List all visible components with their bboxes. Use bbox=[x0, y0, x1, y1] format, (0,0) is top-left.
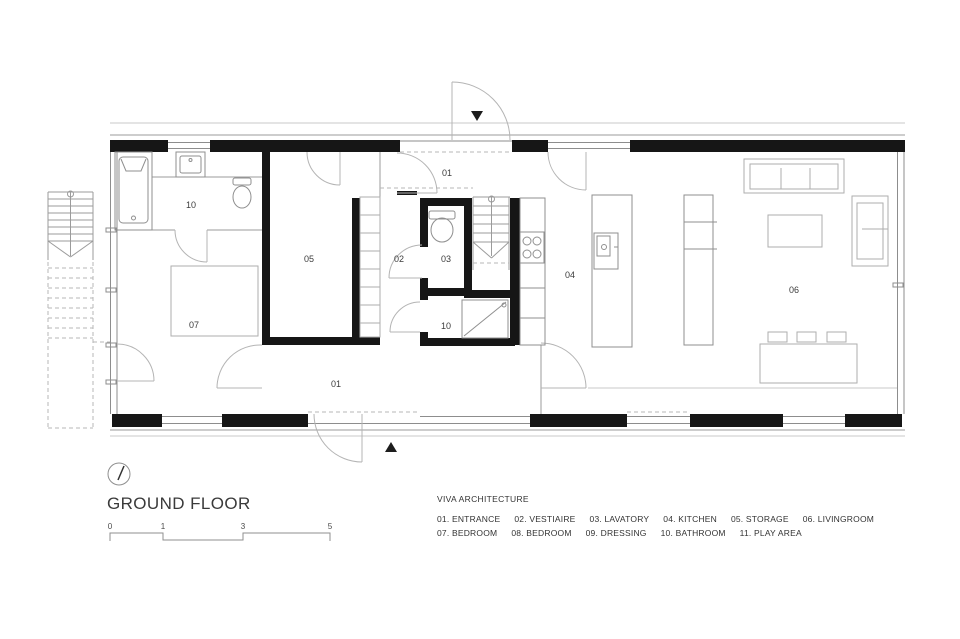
floor-plan-page: 01 02 03 04 05 06 07 10 10 01 0 1 3 5 GR… bbox=[0, 0, 960, 639]
bathtub bbox=[115, 152, 152, 230]
door-entrance-bottom bbox=[314, 414, 362, 462]
legend-item: 07. BEDROOM bbox=[437, 528, 497, 538]
door-hall-inner bbox=[397, 153, 437, 193]
floor-plan-drawing: 01 02 03 04 05 06 07 10 10 01 0 1 3 5 bbox=[0, 0, 960, 639]
kitchen-counter bbox=[520, 198, 545, 345]
shower bbox=[462, 300, 508, 338]
room-label-entrance-corridor: 01 bbox=[331, 379, 341, 389]
room-label-bathroom-lower: 10 bbox=[441, 321, 451, 331]
toilet-lavatory bbox=[429, 211, 455, 242]
kitchen-island bbox=[592, 195, 632, 347]
legend-item: 08. BEDROOM bbox=[511, 528, 571, 538]
wardrobe-shelves bbox=[360, 197, 380, 337]
stove bbox=[520, 232, 544, 263]
room-label-vestiaire: 02 bbox=[394, 254, 404, 264]
scale-label-3: 3 bbox=[241, 522, 246, 531]
bed bbox=[171, 266, 258, 336]
room-label-bathroom-upper: 10 bbox=[186, 200, 196, 210]
windows bbox=[106, 141, 904, 424]
legend-item: 02. VESTIAIRE bbox=[514, 514, 575, 524]
interior-staircase bbox=[473, 196, 510, 270]
page-title: GROUND FLOOR bbox=[107, 494, 251, 514]
room-label-storage: 05 bbox=[304, 254, 314, 264]
room-label-entrance-hall: 01 bbox=[442, 168, 452, 178]
legend-item: 04. KITCHEN bbox=[663, 514, 717, 524]
legend-item: 01. ENTRANCE bbox=[437, 514, 500, 524]
room-label-bedroom: 07 bbox=[189, 320, 199, 330]
firm-name: VIVA ARCHITECTURE bbox=[437, 494, 529, 504]
tall-cabinet bbox=[684, 195, 717, 345]
dining-set bbox=[760, 332, 857, 383]
legend-item: 05. STORAGE bbox=[731, 514, 789, 524]
room-label-kitchen: 04 bbox=[565, 270, 575, 280]
door-kitchen bbox=[548, 152, 586, 190]
scale-label-1: 1 bbox=[161, 522, 166, 531]
exterior-staircase bbox=[48, 191, 110, 428]
entrance-arrow-bottom-icon bbox=[385, 442, 397, 452]
sofa bbox=[744, 159, 844, 193]
door-left-facade bbox=[117, 344, 154, 381]
armchair bbox=[852, 196, 888, 266]
entrance-arrow-top-icon bbox=[471, 111, 483, 121]
legend-item: 11. PLAY AREA bbox=[740, 528, 802, 538]
coffee-table bbox=[768, 215, 822, 247]
scale-label-5: 5 bbox=[328, 522, 333, 531]
legend-item: 09. DRESSING bbox=[586, 528, 647, 538]
washbasin bbox=[176, 152, 205, 177]
legend-row-1: 01. ENTRANCE 02. VESTIAIRE 03. LAVATORY … bbox=[437, 514, 874, 524]
room-label-lavatory: 03 bbox=[441, 254, 451, 264]
legend-item: 06. LIVINGROOM bbox=[803, 514, 874, 524]
fixtures bbox=[115, 152, 717, 347]
door-storage bbox=[307, 152, 340, 185]
room-label-livingroom: 06 bbox=[789, 285, 799, 295]
door-corridor-living bbox=[541, 343, 586, 388]
room-labels: 01 02 03 04 05 06 07 10 10 01 bbox=[186, 168, 799, 389]
building-shell bbox=[110, 123, 905, 436]
legend-row-2: 07. BEDROOM 08. BEDROOM 09. DRESSING 10.… bbox=[437, 528, 802, 538]
door-bathroom-lower bbox=[390, 302, 420, 332]
furniture bbox=[171, 159, 888, 383]
door-bathroom-upper bbox=[175, 230, 207, 262]
scale-bar: 0 1 3 5 bbox=[108, 522, 333, 541]
north-indicator-icon bbox=[108, 463, 130, 485]
legend-item: 10. BATHROOM bbox=[661, 528, 726, 538]
door-bedroom bbox=[217, 345, 262, 388]
toilet-bathroom bbox=[233, 178, 251, 208]
legend-item: 03. LAVATORY bbox=[590, 514, 650, 524]
scale-label-0: 0 bbox=[108, 522, 113, 531]
